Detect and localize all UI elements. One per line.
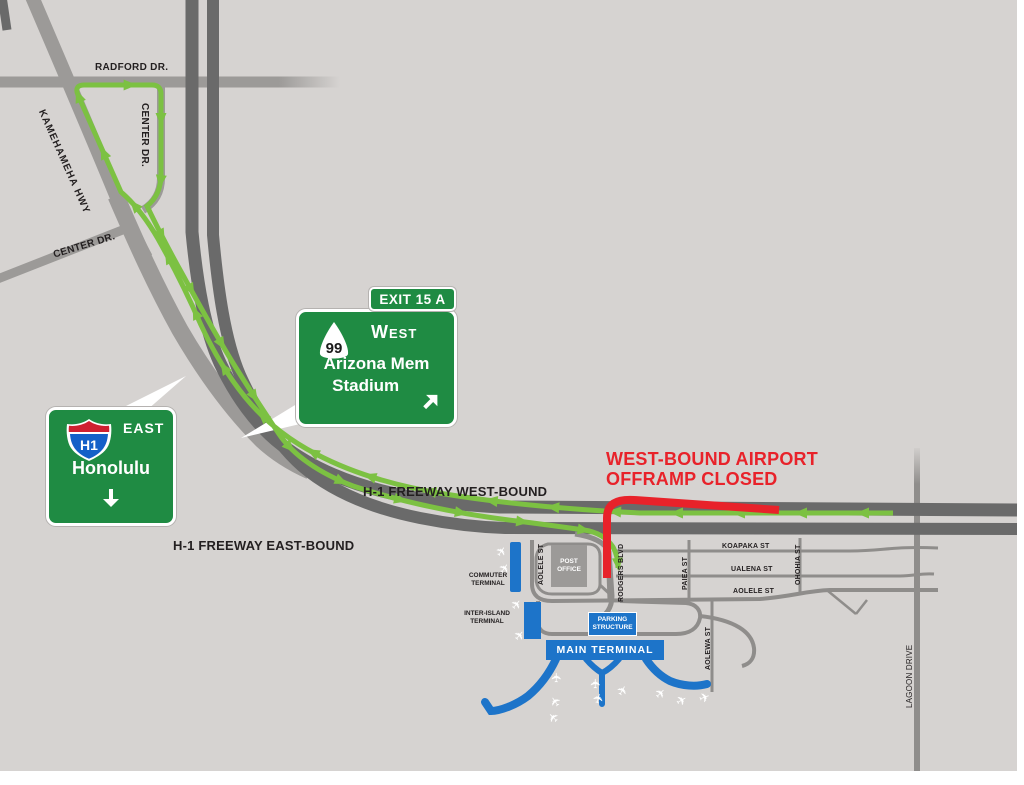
exit-15a-tab: EXIT 15 A (369, 287, 456, 311)
closure-line2: OFFRAMP CLOSED (606, 469, 777, 489)
post-office-line1: POST (560, 558, 578, 566)
post-office-line2: OFFICE (557, 566, 581, 574)
honolulu-east-sign: H1 EAST Honolulu (46, 407, 176, 526)
down-arrow-icon (99, 487, 123, 515)
label-koapaka-st: KOAPAKA ST (722, 543, 770, 550)
label-radford-dr: RADFORD DR. (95, 62, 168, 73)
terminal-pier-left (485, 659, 556, 711)
closure-line1: WEST-BOUND AIRPORT (606, 449, 818, 469)
label-rodgers-blvd: RODGERS BLVD (618, 544, 625, 602)
closure-notice: WEST-BOUND AIRPORT OFFRAMP CLOSED (606, 449, 818, 489)
airplane-icon: ✈ (550, 672, 563, 683)
parking-structure: PARKING STRUCTURE (588, 612, 637, 636)
main-terminal-building: MAIN TERMINAL (546, 640, 664, 660)
label-ualena-st: UALENA ST (731, 566, 773, 573)
parking-line2: STRUCTURE (592, 624, 632, 632)
sign-dest-line1: Arizona Mem (299, 354, 454, 374)
label-aolele-st-east: AOLELE ST (733, 588, 774, 595)
label-ohohia-st: OHOHIA ST (795, 545, 802, 585)
sign-dest-line2: Stadium (299, 376, 432, 396)
h1-interstate-shield-icon: H1 (65, 417, 113, 461)
road-edge-stub (2, 0, 7, 30)
road-koapaka-st (616, 548, 938, 551)
svg-text:H1: H1 (80, 437, 98, 453)
map-canvas (0, 0, 1024, 785)
callout-east-sign (118, 376, 186, 410)
label-inter-island-terminal: INTER-ISLAND TERMINAL (452, 610, 522, 625)
northeast-arrow-icon (416, 386, 442, 412)
label-h1-westbound: H-1 FREEWAY WEST-BOUND (363, 484, 547, 499)
main-terminal-label: MAIN TERMINAL (557, 644, 654, 656)
exit-tab-label: EXIT 15 A (379, 292, 445, 307)
post-office-building: POST OFFICE (551, 545, 587, 587)
label-aolewa-st: AOLEWA ST (705, 627, 712, 670)
label-h1-eastbound: H-1 FREEWAY EAST-BOUND (173, 538, 354, 553)
commuter-line2: TERMINAL (471, 580, 505, 587)
sign-direction-west: West (371, 322, 417, 343)
label-lagoon-drive: LAGOON DRIVE (905, 645, 914, 708)
road-aolele-branch (828, 591, 867, 614)
arizona-stadium-sign: 99 West Arizona Mem Stadium (296, 309, 457, 427)
detour-map: RADFORD DR. CENTER DR. KAMEHAMEHA HWY CE… (0, 0, 1024, 785)
label-aolele-st-west: AOLELE ST (538, 544, 545, 585)
label-center-dr-upper: CENTER DR. (139, 103, 150, 167)
airplane-icon: ✈ (589, 678, 602, 689)
inter-island-line2: TERMINAL (470, 618, 504, 625)
inter-island-line1: INTER-ISLAND (464, 610, 510, 617)
sign-direction-east-text: EAST (123, 420, 164, 436)
label-paiea-st: PAIEA ST (682, 557, 689, 590)
terminal-pier-right (646, 659, 707, 686)
road-ualena-st (616, 574, 934, 576)
parking-line1: PARKING (598, 616, 628, 624)
sign-dest-honolulu: Honolulu (49, 458, 173, 479)
